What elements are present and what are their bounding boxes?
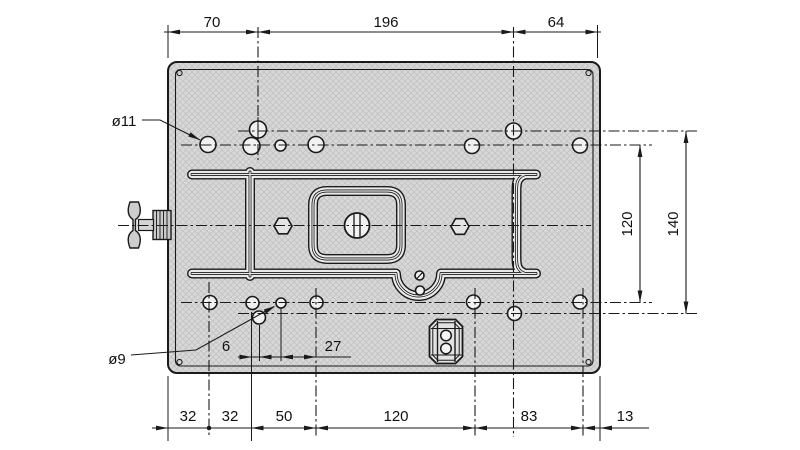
dim-bottom-32a: 32 [180,408,197,425]
dim-bottom-32b: 32 [222,408,239,425]
dim-bottom-83: 83 [521,408,538,425]
technical-drawing: 70 196 64 120 140 32 32 50 120 83 13 6 2… [0,0,800,450]
plate-outline [168,62,600,373]
dim-top-196: 196 [373,14,398,31]
label-hole-diameter-11: ø11 [112,113,137,130]
label-hole-diameter-9: ø9 [108,351,126,368]
dim-detail-27: 27 [325,338,342,355]
plate-body [168,62,600,373]
dim-bottom-120: 120 [383,408,408,425]
drawing-canvas: 70 196 64 120 140 32 32 50 120 83 13 6 2… [0,0,800,450]
keeper-plate [430,320,463,364]
hole-11mm [465,139,480,154]
keeper-hole [441,343,452,354]
dim-detail-6: 6 [222,338,230,355]
dim-right-140: 140 [665,211,682,236]
dim-top-64: 64 [548,14,565,31]
dim-top-70: 70 [204,14,221,31]
dim-bottom-13: 13 [617,408,634,425]
hex-hole [451,219,469,235]
keeper-hole [441,330,452,341]
dim-right-120: 120 [619,211,636,236]
small-screw-hole [416,286,425,295]
dim-bottom-50: 50 [276,408,293,425]
